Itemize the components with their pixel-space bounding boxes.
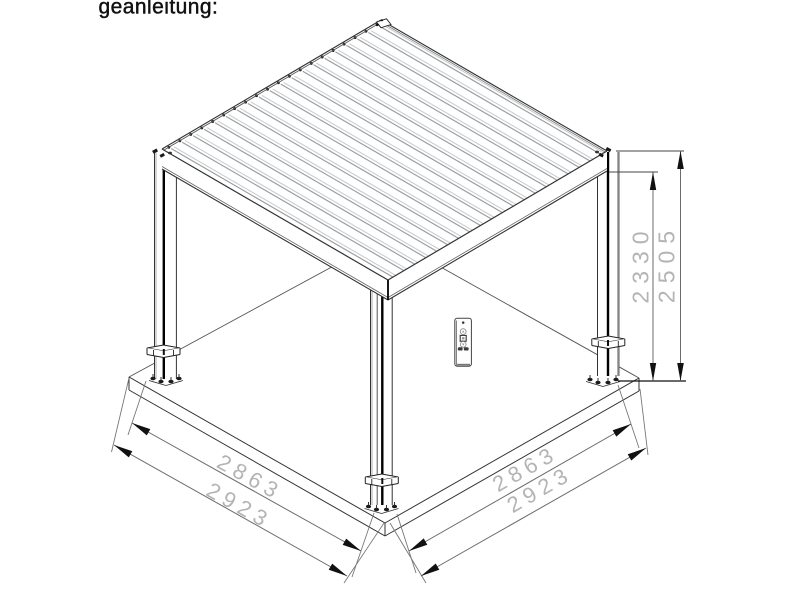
svg-text:2505: 2505 xyxy=(654,224,680,303)
svg-text:geanleitung:: geanleitung: xyxy=(99,0,219,19)
svg-text:2330: 2330 xyxy=(628,224,654,303)
